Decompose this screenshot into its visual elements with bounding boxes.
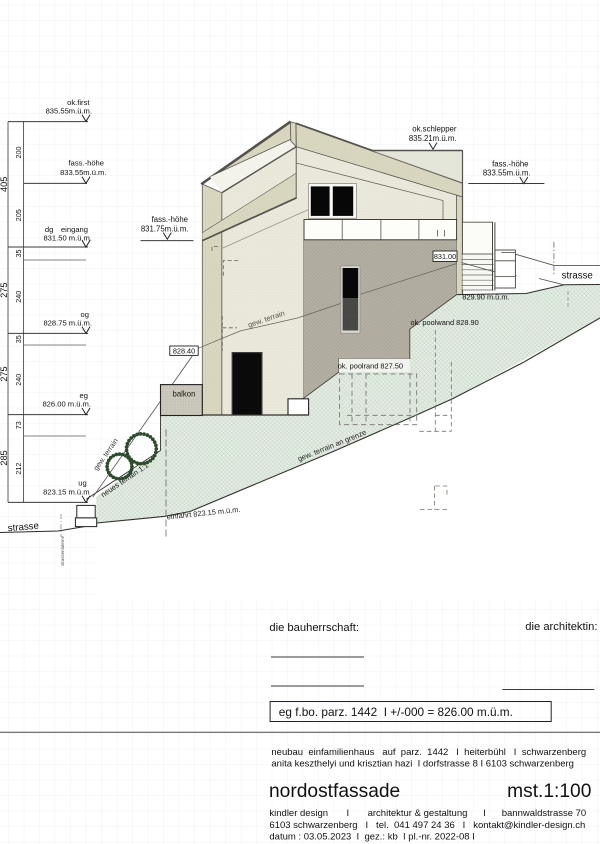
svg-text:6103 schwarzenberg I tel.: 6103 schwarzenberg I tel. 041 497 24 36 … [269,820,585,831]
svg-text:die architektin:: die architektin: [525,621,597,633]
svg-text:neubau einfamilienhaus auf: neubau einfamilienhaus auf parz. 1442 I … [271,747,586,758]
svg-text:826.00 m.ü.m.: 826.00 m.ü.m. [42,399,91,408]
svg-text:828.75 m.ü.m.: 828.75 m.ü.m. [43,318,92,327]
svg-text:fass.-höhe: fass.-höhe [492,159,528,168]
svg-text:35: 35 [14,335,23,343]
svg-text:fass.-höhe: fass.-höhe [69,159,104,168]
svg-text:833.55m.ü.m.: 833.55m.ü.m. [60,168,106,177]
svg-text:anita keszthelyi und krisztian: anita keszthelyi und krisztian hazi I do… [271,759,574,770]
svg-text:mst.1:100: mst.1:100 [507,781,591,802]
svg-text:die bauherrschaft:: die bauherrschaft: [269,622,359,634]
svg-text:835.55m.ü.m.: 835.55m.ü.m. [46,107,92,116]
svg-text:831.75m.ü.m.: 831.75m.ü.m. [141,225,189,234]
svg-text:831.50 m.ü.m.: 831.50 m.ü.m. [43,233,92,242]
svg-text:828.40: 828.40 [173,346,195,355]
svg-text:405: 405 [0,177,9,192]
svg-text:285: 285 [0,450,9,465]
svg-text:275: 275 [0,283,9,298]
svg-text:240: 240 [14,291,23,303]
svg-text:35: 35 [14,250,23,258]
svg-text:strasse: strasse [7,521,39,535]
svg-text:275: 275 [0,366,9,381]
svg-text:73: 73 [14,421,23,429]
svg-text:835.21m.ü.m.: 835.21m.ü.m. [409,134,457,143]
svg-text:eg f.bo. parz. 1442 I +/-000: eg f.bo. parz. 1442 I +/-000 = 826.00 m.… [279,705,513,719]
svg-text:fass.-höhe: fass.-höhe [152,215,188,224]
svg-text:831.00: 831.00 [434,252,456,261]
svg-text:212: 212 [14,463,23,475]
svg-text:ok.schlepper: ok.schlepper [412,125,457,134]
svg-text:205: 205 [14,209,23,221]
svg-text:nordostfassade: nordostfassade [269,781,400,802]
svg-text:datum : 03.05.2023 I gez.: k: datum : 03.05.2023 I gez.: kb I pl.-nr. … [269,832,474,843]
svg-text:strasse: strasse [562,271,593,282]
svg-text:200: 200 [14,147,23,159]
svg-text:strassenlaterne: strassenlaterne [60,535,65,566]
svg-text:240: 240 [14,374,23,386]
svg-text:833.55m.ü.m.: 833.55m.ü.m. [483,169,531,178]
svg-text:ok. poolwand 828.90: ok. poolwand 828.90 [411,318,479,327]
svg-text:ug: ug [78,479,86,488]
svg-text:balkon: balkon [173,390,196,399]
svg-text:kindler design I a: kindler design I architektur & gestaltun… [269,808,600,819]
svg-text:829.90 m.ü.m.: 829.90 m.ü.m. [462,293,509,302]
svg-text:ok. poolrand 827.50: ok. poolrand 827.50 [338,361,403,370]
svg-text:823.15 m.ü.m: 823.15 m.ü.m [43,488,89,497]
